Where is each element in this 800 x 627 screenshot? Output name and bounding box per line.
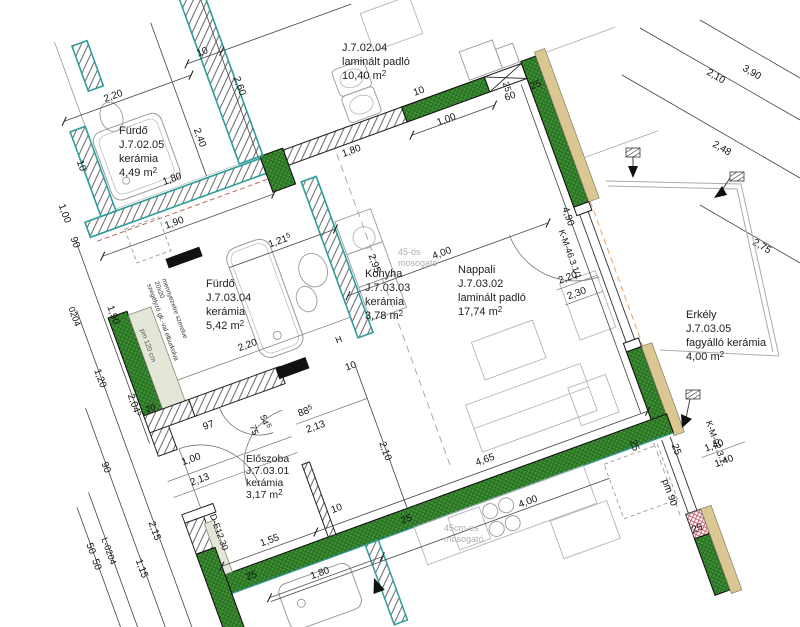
svg-text:3,78 m2: 3,78 m2 xyxy=(365,309,404,322)
svg-text:45-ös: 45-ös xyxy=(398,247,421,257)
svg-text:45cm-es: 45cm-es xyxy=(444,523,479,533)
svg-text:mosogató: mosogató xyxy=(444,534,484,544)
svg-text:mosogató: mosogató xyxy=(398,258,438,268)
svg-text:Előszoba: Előszoba xyxy=(246,453,289,465)
svg-text:4,00 m2: 4,00 m2 xyxy=(686,350,725,363)
svg-text:10,40 m2: 10,40 m2 xyxy=(342,69,387,82)
svg-text:fagyálló kerámia: fagyálló kerámia xyxy=(686,337,767,349)
svg-text:J.7.03.04: J.7.03.04 xyxy=(206,292,251,304)
svg-text:J.7.02.04: J.7.02.04 xyxy=(342,42,387,54)
svg-text:J.7.03.01: J.7.03.01 xyxy=(246,465,289,477)
svg-text:4,49 m2: 4,49 m2 xyxy=(119,166,158,179)
svg-text:laminált padló: laminált padló xyxy=(458,292,526,304)
svg-text:J.7.03.03: J.7.03.03 xyxy=(365,282,410,294)
svg-text:kerámia: kerámia xyxy=(206,306,246,318)
svg-text:Nappali: Nappali xyxy=(458,264,495,276)
svg-text:Konyha: Konyha xyxy=(365,268,403,280)
svg-text:Fürdő: Fürdő xyxy=(206,278,235,290)
svg-text:J.7.03.02: J.7.03.02 xyxy=(458,278,503,290)
svg-text:5,42 m2: 5,42 m2 xyxy=(206,319,245,332)
svg-text:J.7.02.05: J.7.02.05 xyxy=(119,139,164,151)
svg-text:kerámia: kerámia xyxy=(365,296,405,308)
svg-text:17,74 m2: 17,74 m2 xyxy=(458,305,503,318)
svg-text:3,17 m2: 3,17 m2 xyxy=(246,488,283,501)
svg-text:J.7.03.05: J.7.03.05 xyxy=(686,323,731,335)
svg-text:laminált padló: laminált padló xyxy=(342,56,410,68)
svg-text:Fürdő: Fürdő xyxy=(119,125,148,137)
svg-text:kerámia: kerámia xyxy=(119,153,159,165)
svg-text:Erkély: Erkély xyxy=(686,309,717,321)
